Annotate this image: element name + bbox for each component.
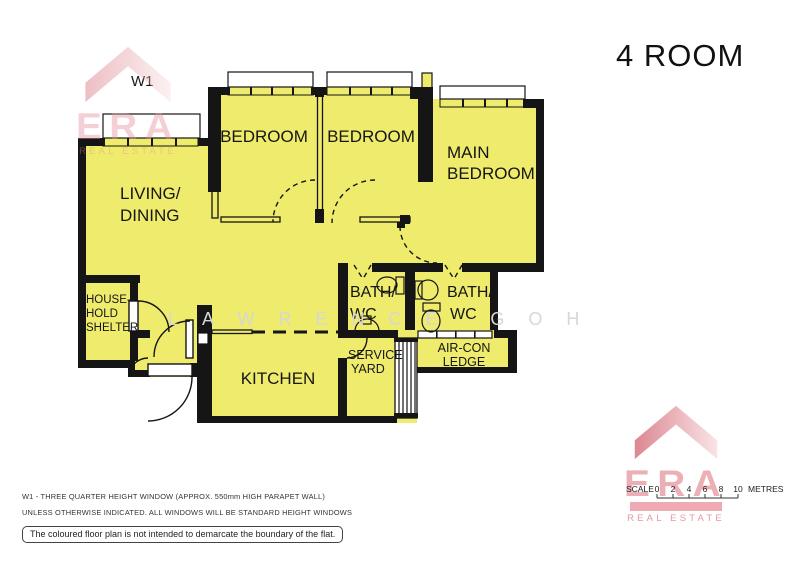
bath-left-label: BATH/ bbox=[350, 284, 396, 301]
shelter-label: SHELTER bbox=[86, 322, 138, 334]
scale-unit: METRES bbox=[748, 484, 784, 494]
bedroom2-label: BEDROOM bbox=[327, 127, 415, 146]
kitchen-label: KITCHEN bbox=[241, 369, 316, 388]
window-note-2: UNLESS OTHERWISE INDICATED. ALL WINDOWS … bbox=[22, 508, 352, 517]
scale-tick-10: 10 bbox=[733, 484, 743, 494]
living-label: LIVING/ bbox=[120, 184, 181, 203]
aircon-ledge-label: LEDGE bbox=[443, 355, 485, 369]
scale-tick-2: 2 bbox=[671, 484, 676, 494]
living-label: DINING bbox=[120, 206, 180, 225]
main-bedroom-label: BEDROOM bbox=[447, 164, 535, 183]
service-yard-label: SERVICE bbox=[348, 348, 403, 362]
bath-right-label: BATH/ bbox=[447, 284, 493, 301]
main-bedroom-label: MAIN bbox=[447, 143, 490, 162]
aircon-ledge-label: AIR-CON bbox=[438, 341, 491, 355]
scale-ruler-line bbox=[657, 494, 738, 498]
scale-tick-8: 8 bbox=[719, 484, 724, 494]
scale-tick-4: 4 bbox=[687, 484, 692, 494]
entrance-door-panel bbox=[148, 364, 192, 376]
bedroom1-label: BEDROOM bbox=[220, 127, 308, 146]
agent-name-watermark: LAWRENCE GOH bbox=[168, 309, 603, 330]
shelter-label: HOUSE- bbox=[86, 294, 131, 306]
entrance-door-swing bbox=[148, 377, 192, 421]
page-title: 4 ROOM bbox=[616, 38, 744, 74]
scale-tick-0: 0 bbox=[655, 484, 660, 494]
floorplan-page: { "title": "4 ROOM", "plan": { "window_l… bbox=[0, 0, 800, 566]
window-w1-label: W1 bbox=[131, 73, 154, 90]
scale-label: SCALE bbox=[626, 484, 654, 494]
footer-notes: W1 - THREE QUARTER HEIGHT WINDOW (APPROX… bbox=[22, 492, 352, 543]
scale-tick-6: 6 bbox=[703, 484, 708, 494]
scale-bar: SCALE 0 2 4 6 8 10 METRES bbox=[624, 479, 790, 505]
disclaimer-box: The coloured floor plan is not intended … bbox=[22, 526, 343, 543]
service-yard-label: YARD bbox=[351, 362, 385, 376]
shelter-label: HOLD bbox=[86, 308, 118, 320]
window-note-1: W1 - THREE QUARTER HEIGHT WINDOW (APPROX… bbox=[22, 492, 352, 501]
